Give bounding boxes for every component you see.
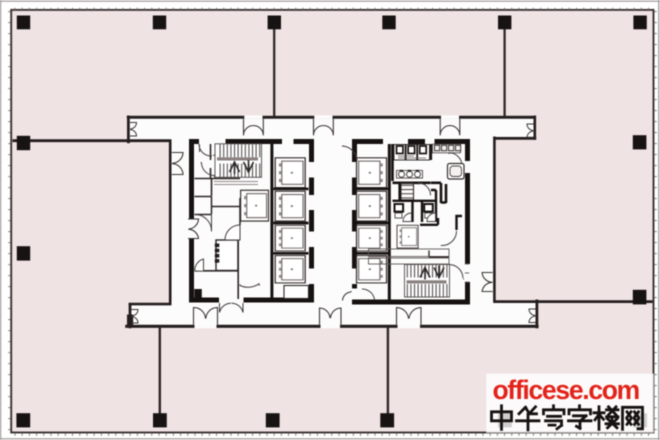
svg-text:officese.com: officese.com bbox=[493, 375, 639, 405]
